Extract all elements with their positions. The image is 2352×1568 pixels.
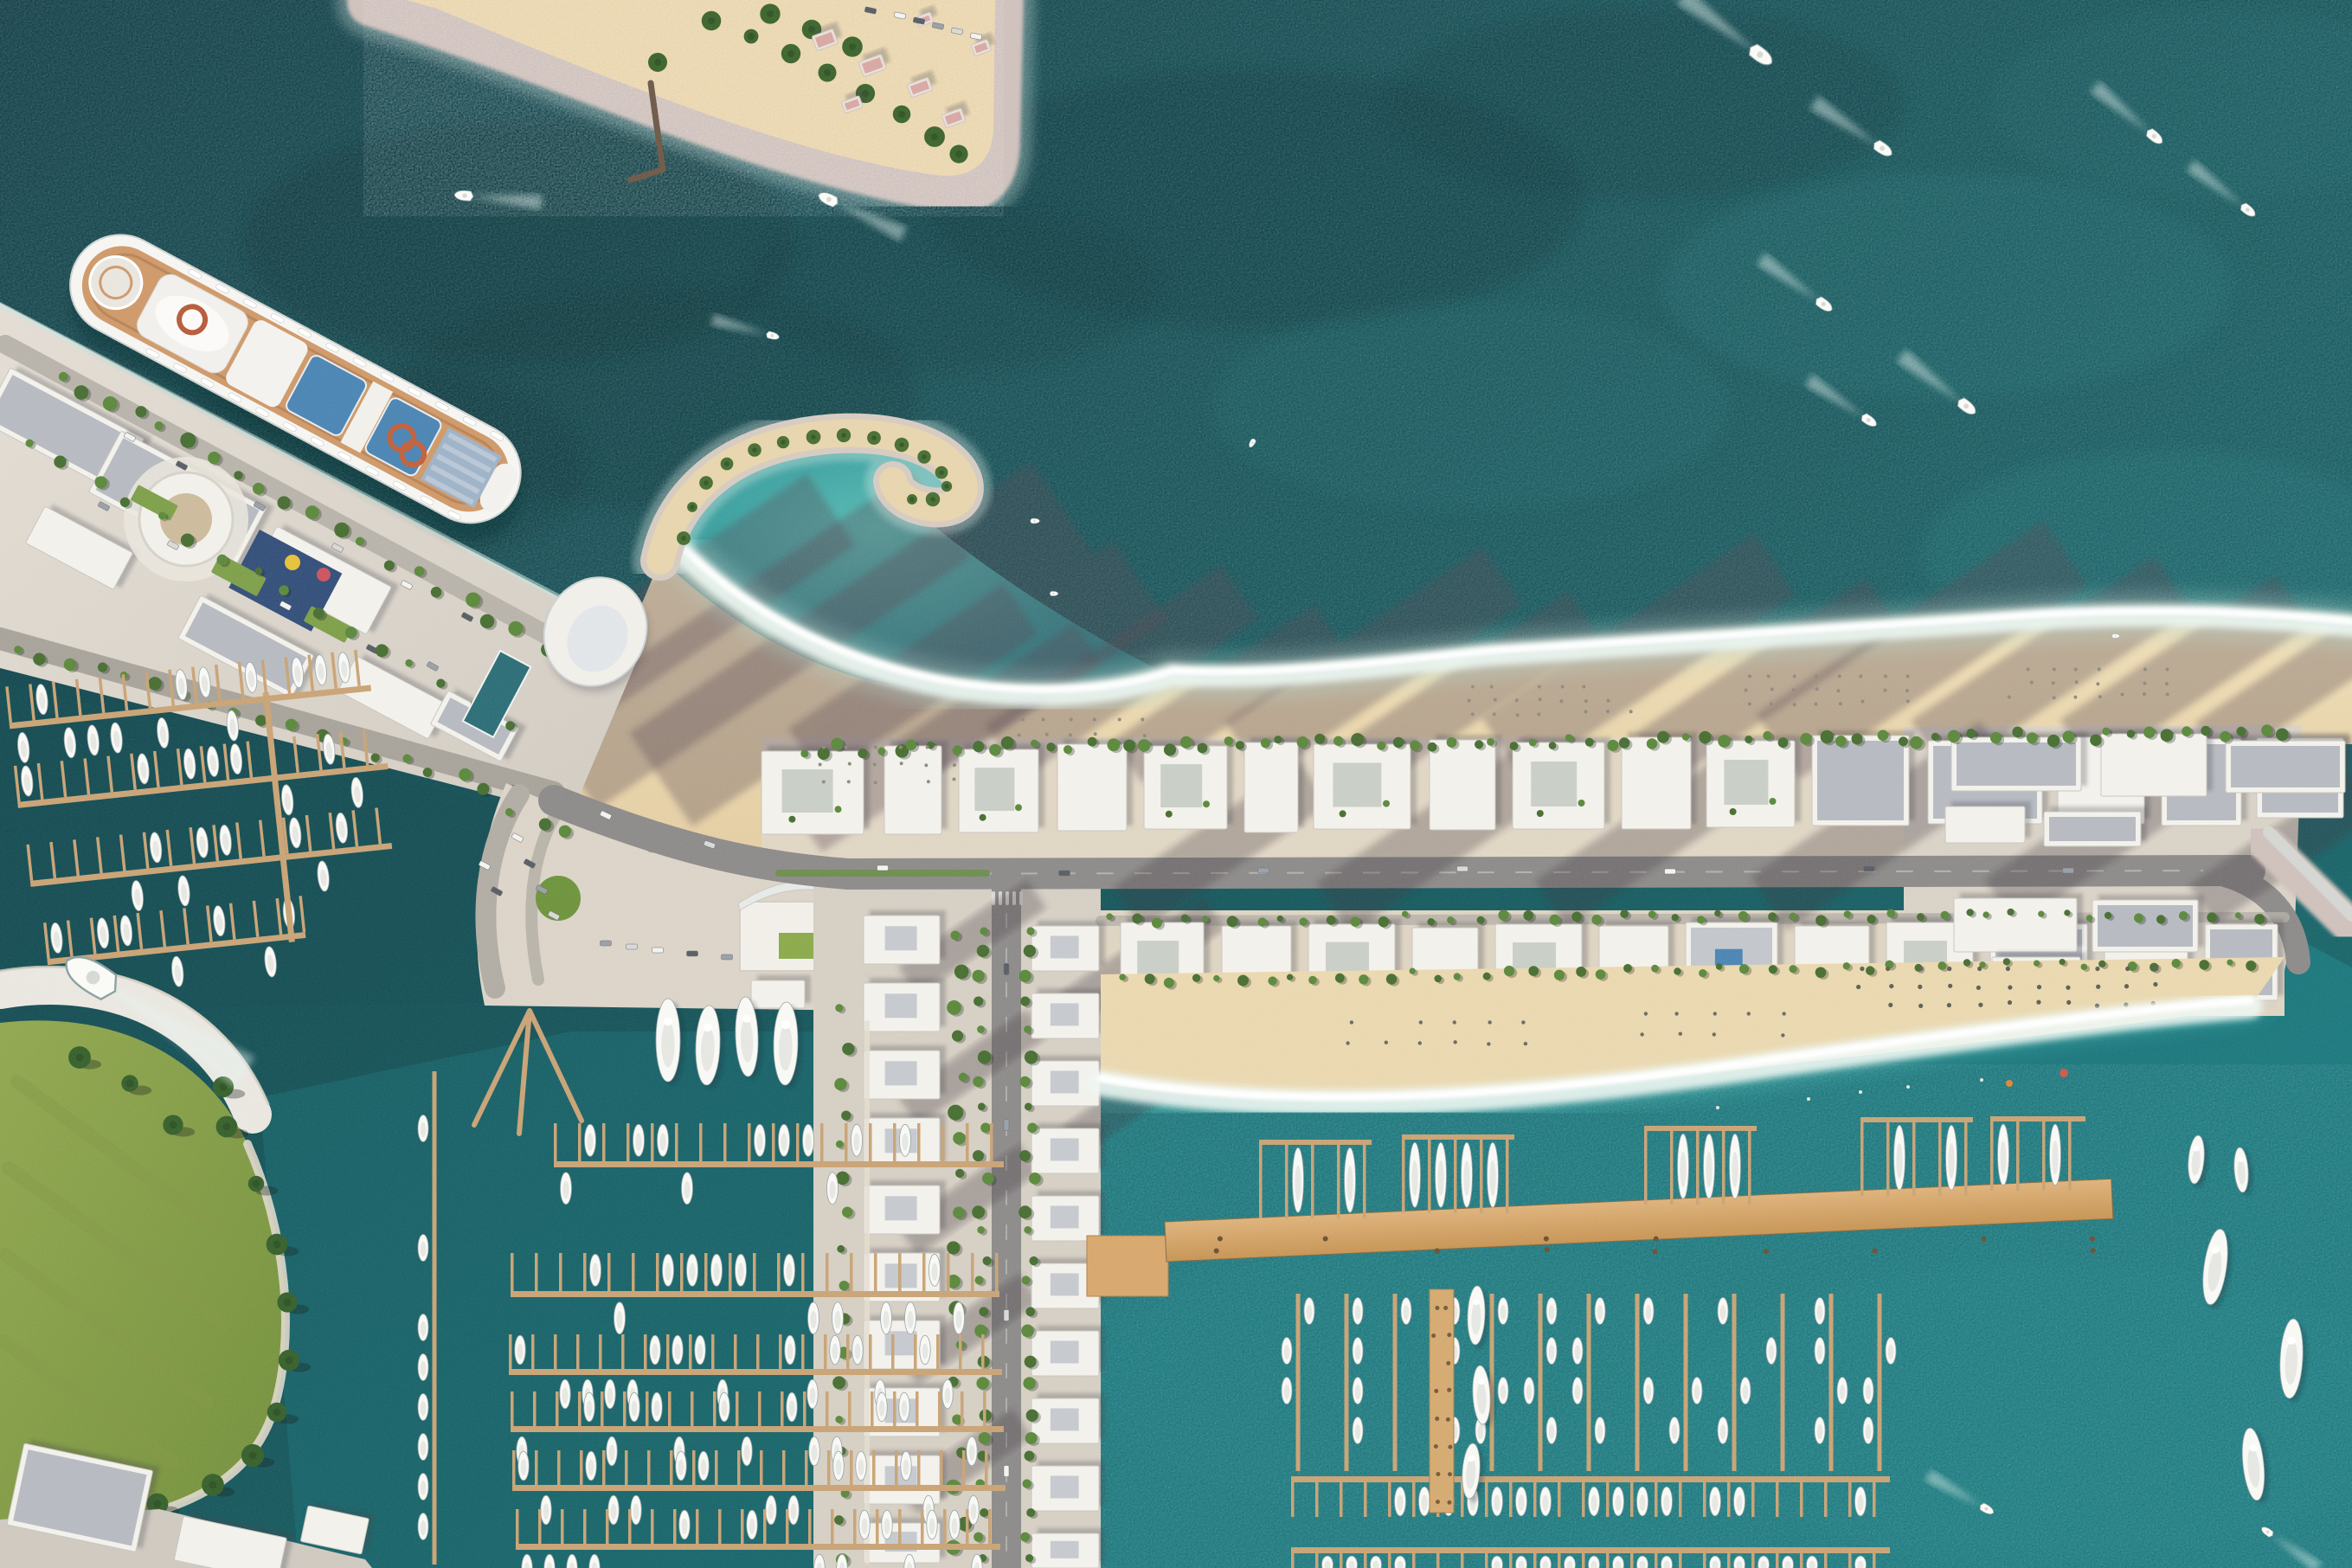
grain-global xyxy=(0,0,2352,1568)
aerial-screenshot xyxy=(0,0,2352,1568)
aerial-view-dubai-harbour-style-marina xyxy=(0,0,2352,1568)
scene-root xyxy=(0,0,2352,1568)
